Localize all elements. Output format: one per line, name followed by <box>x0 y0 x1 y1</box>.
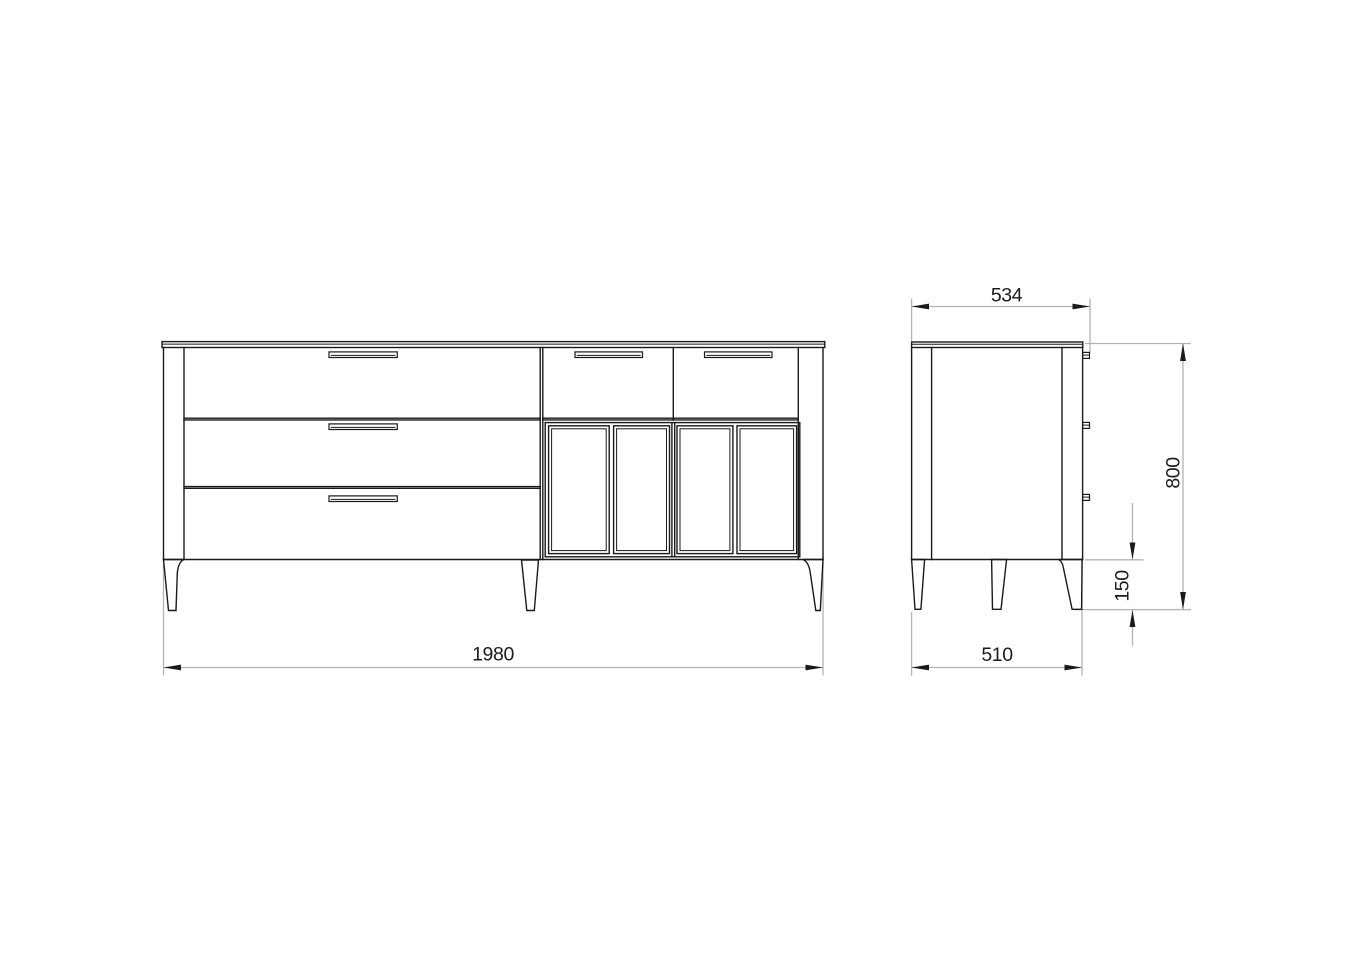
drawing-canvas: 1980 534 510 800 150 <box>0 0 1350 960</box>
leg <box>164 560 185 611</box>
arrow-depth-body-left <box>912 665 930 671</box>
leg <box>522 560 539 611</box>
technical-drawing: 1980 534 510 800 150 <box>0 0 1350 960</box>
dim-height-label: 800 <box>1163 457 1185 489</box>
front-center-partition <box>540 348 543 560</box>
drawer-handle <box>329 496 397 502</box>
side-tabletop <box>912 342 1083 348</box>
handle-profile <box>1083 494 1090 500</box>
handle-profile <box>1083 352 1090 358</box>
front-right-drawer-divider <box>543 418 799 420</box>
arrow-leg-height-bottom <box>1130 610 1136 627</box>
dim-width-label: 1980 <box>472 644 514 666</box>
door-panel <box>737 426 797 554</box>
dim-depth-body-label: 510 <box>981 644 1013 666</box>
handle-profile <box>1083 422 1090 428</box>
door-meeting-stiles <box>672 423 675 557</box>
arrow-width-left <box>164 665 182 671</box>
side-tabletop-edge <box>912 342 1083 348</box>
side-panel-lines <box>912 348 1083 560</box>
front-doors <box>545 423 800 557</box>
arrow-depth-body-right <box>1065 665 1083 671</box>
dim-depth-overall-label: 534 <box>991 285 1023 307</box>
leg <box>912 560 925 610</box>
front-view <box>162 342 825 611</box>
front-side-panels <box>164 348 824 560</box>
front-left-drawer-dividers <box>184 418 540 488</box>
front-handles <box>329 352 772 502</box>
arrow-height-top <box>1180 344 1186 362</box>
door-panel <box>677 426 733 554</box>
arrow-width-right <box>806 665 824 671</box>
leg <box>803 560 823 611</box>
arrow-leg-height-top <box>1130 543 1136 560</box>
side-view <box>912 342 1090 609</box>
dim-leg-height-label: 150 <box>1112 570 1134 602</box>
drawer-handle <box>575 352 643 358</box>
front-tabletop <box>162 342 825 348</box>
drawer-handle <box>705 352 773 358</box>
side-legs <box>912 560 1083 610</box>
side-handle-profiles <box>1083 352 1090 500</box>
drawer-handle <box>329 352 397 358</box>
arrow-depth-overall-right <box>1073 304 1091 310</box>
drawer-handle <box>329 424 397 430</box>
leg <box>1059 560 1083 610</box>
door-panel <box>614 426 670 554</box>
arrow-depth-overall-left <box>912 304 930 310</box>
front-legs <box>164 560 824 611</box>
door-panel <box>549 426 610 554</box>
leg <box>992 560 1007 610</box>
arrow-height-bottom <box>1180 592 1186 610</box>
